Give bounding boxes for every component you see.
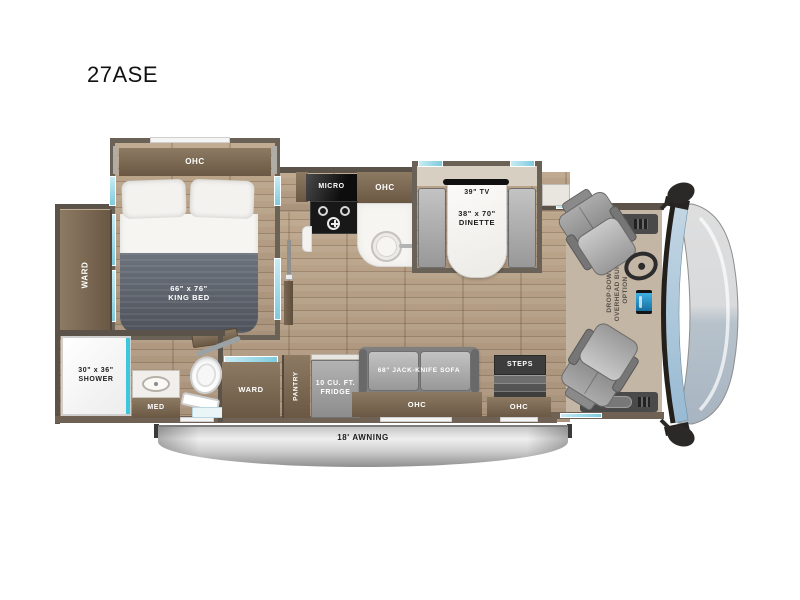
dinette-label: DINETTE: [459, 218, 495, 227]
floorplan-diagram: OHC 66" x 76" KING BED WARD 30" x 36" SH…: [0, 0, 800, 600]
counter-end: [302, 226, 312, 252]
pantry: PANTRY: [282, 355, 310, 418]
dinette-window-left: [418, 160, 443, 167]
bedroom-window-left-1: [109, 176, 116, 206]
bed-pillow-left: [121, 179, 186, 219]
mid-ward: WARD: [222, 362, 280, 418]
sofa-label: 68" JACK-KNIFE SOFA: [378, 367, 460, 375]
microwave: MICRO: [306, 174, 357, 201]
steps-label: STEPS: [507, 361, 533, 370]
mid-ward-label: WARD: [238, 385, 263, 394]
bedroom-ohc-label: OHC: [185, 157, 205, 167]
faucet: [399, 244, 413, 248]
bedroom-slide-jamb-left: [113, 146, 118, 174]
sofa-ohc-label: OHC: [408, 400, 426, 409]
awning: 18' AWNING: [158, 425, 568, 467]
sofa-ohc: OHC: [352, 392, 482, 417]
jack-knife-sofa: 68" JACK-KNIFE SOFA: [359, 347, 479, 395]
shower: 30" x 36" SHOWER: [61, 336, 131, 416]
bed-pillow-right: [189, 179, 254, 219]
dinette-bench-right: [508, 188, 536, 268]
king-bed-size-label: 66" x 76": [170, 284, 208, 293]
rear-ward: WARD: [60, 210, 112, 340]
entry-ohc-label: OHC: [510, 402, 528, 411]
awning-label: 18' AWNING: [337, 433, 389, 443]
kitchen-sink-basin: [376, 236, 397, 257]
med-counter: [132, 370, 180, 398]
sofa-arm-right: [471, 349, 479, 393]
bedroom-window-right-2: [274, 258, 281, 320]
pocket-door-track: [287, 240, 291, 277]
tv-label: 39" TV: [464, 189, 490, 198]
fridge-label-line1: 10 CU. FT.: [316, 380, 355, 389]
bedroom-slide-top-window: [150, 137, 230, 143]
king-bed-mattress: 66" x 76" KING BED: [120, 253, 258, 333]
pocket-door-leaf: [284, 281, 293, 325]
rear-top-wall: [55, 204, 117, 209]
sofa-arm-left: [359, 349, 367, 393]
shower-label: SHOWER: [78, 376, 113, 385]
med-sink-drain: [154, 382, 158, 386]
shower-size-label: 30" x 36": [78, 367, 113, 376]
rear-ward-label: WARD: [80, 262, 90, 289]
dinette-size-label: 38" x 70": [458, 209, 496, 218]
tv-label-wrap: 39" TV: [447, 188, 507, 198]
cab-front: [628, 168, 748, 468]
bedroom-slide-jamb-right: [272, 146, 277, 174]
burner-left: [318, 206, 328, 216]
bedroom-ohc: OHC: [119, 148, 271, 176]
med-label: MED: [147, 404, 164, 413]
pantry-label: PANTRY: [293, 372, 301, 402]
dinette-window-right: [510, 160, 535, 167]
king-bed-type-label: KING BED: [168, 293, 209, 302]
dinette-table: 38" x 70" DINETTE: [447, 184, 507, 278]
bedroom-window-right-1: [274, 176, 281, 206]
sink-counter: [357, 203, 413, 267]
tv: [443, 179, 509, 185]
burner-right: [340, 206, 350, 216]
floorplan-page: 27ASE OHC: [0, 0, 800, 600]
bottom-window-3: [500, 417, 538, 422]
dinette-bench-left: [418, 188, 446, 268]
shower-glass: [126, 338, 130, 414]
pocket-door-cap: [285, 274, 293, 280]
entry-ohc: OHC: [487, 397, 551, 417]
steps: STEPS: [494, 355, 546, 375]
med-cabinet: MED: [132, 398, 180, 418]
kitchen-ohc-label: OHC: [375, 183, 395, 193]
kitchen-ohc: OHC: [357, 172, 413, 203]
fridge-label-line2: FRIDGE: [320, 389, 350, 398]
cooktop: [310, 201, 358, 234]
bottom-window-2: [380, 417, 452, 422]
toilet-mat: [192, 407, 224, 418]
burner-center: [327, 217, 340, 230]
microwave-label: MICRO: [318, 183, 344, 192]
